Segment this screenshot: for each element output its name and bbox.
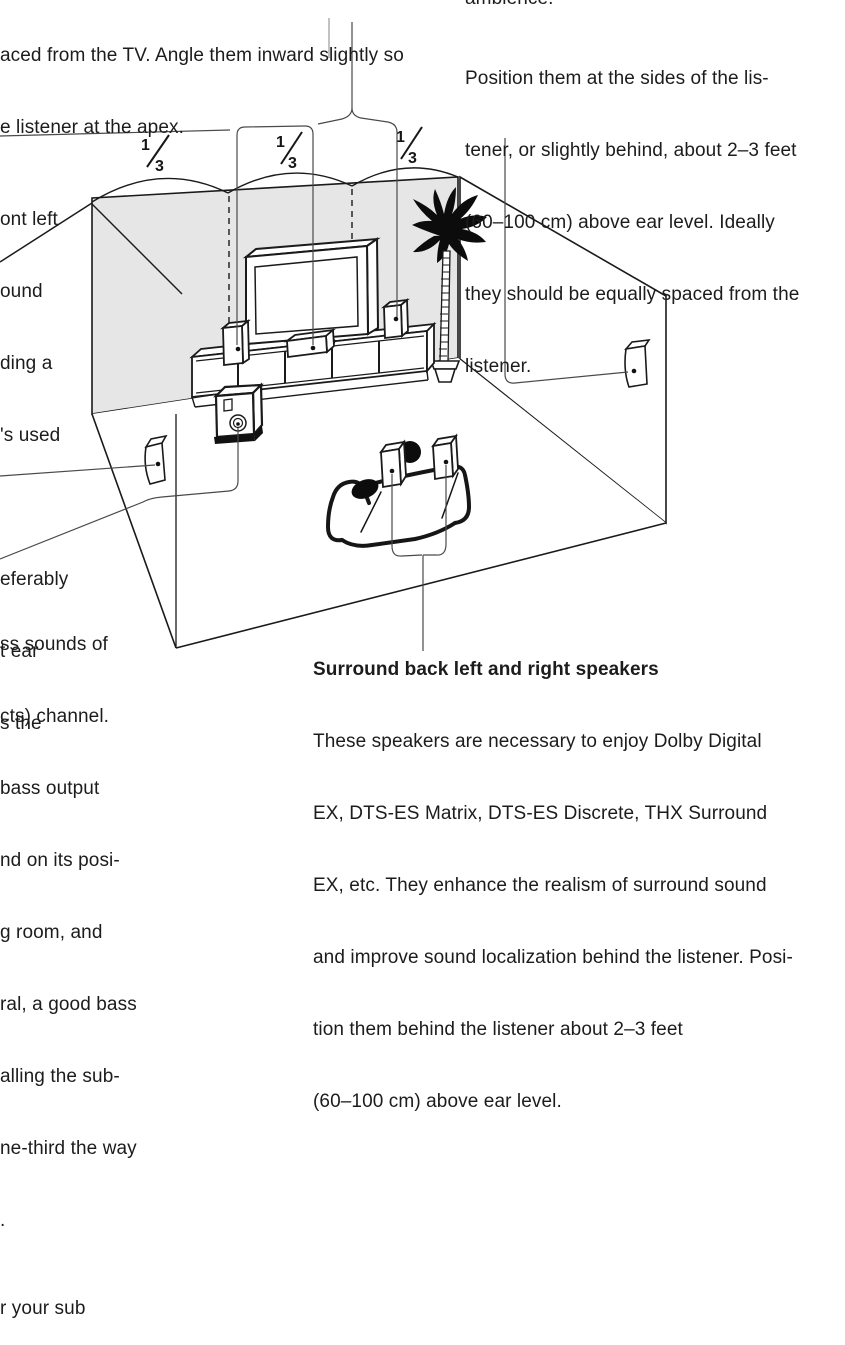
subwoofer-port [224, 399, 232, 411]
text-fragment: ound [0, 280, 68, 304]
text-fragment: ral, a good bass [0, 993, 137, 1017]
text-line: they should be equally spaced from the [465, 283, 799, 307]
text-fragment: alling the sub- [0, 1065, 137, 1089]
text-line: EX, DTS-ES Matrix, DTS-ES Discrete, THX … [313, 802, 793, 826]
text-fragment: ss sounds of [0, 633, 137, 657]
text-fragment: nd on its posi- [0, 849, 137, 873]
text-line: tion them behind the listener about 2–3 … [313, 1018, 793, 1042]
text-line: Position them at the sides of the lis- [465, 67, 799, 91]
text-fragment [0, 496, 68, 520]
text-fragment: ne-third the way [0, 1137, 137, 1161]
text-fragment: cts) channel. [0, 705, 137, 729]
text-line: These speakers are necessary to enjoy Do… [313, 730, 793, 754]
text-fragment: g room, and [0, 921, 137, 945]
text-line: tener, or slightly behind, about 2–3 fee… [465, 139, 799, 163]
subwoofer-clipped-paragraph: ss sounds of cts) channel. bass output n… [0, 585, 137, 1345]
fraction-den: 3 [408, 150, 417, 167]
text-line: aced from the TV. Angle them inward slig… [0, 44, 404, 68]
surround-speakers-paragraph: Position them at the sides of the lis- t… [465, 19, 799, 403]
surround-back-heading: Surround back left and right speakers [313, 658, 659, 682]
text-line: (60–100 cm) above ear level. [313, 1090, 793, 1114]
text-fragment: ont left [0, 208, 68, 232]
manual-page: { "top_left": { "lines": ["aced from the… [0, 0, 845, 835]
top-right-clipped-line: ambience. [465, 0, 554, 11]
text-fragment: r your sub [0, 1297, 137, 1321]
text-fragment: bass output [0, 777, 137, 801]
surround-back-left-speaker [381, 442, 406, 487]
cabinet-right-end [427, 324, 434, 371]
text-fragment: ding a [0, 352, 68, 376]
text-line: listener. [465, 355, 799, 379]
text-fragment: . [0, 1209, 137, 1233]
tv-screen [255, 257, 358, 334]
text-line: EX, etc. They enhance the realism of sur… [313, 874, 793, 898]
text-line: (60–100 cm) above ear level. Ideally [465, 211, 799, 235]
text-line: e listener at the apex. [0, 116, 404, 140]
text-fragment: 's used [0, 424, 68, 448]
text-line: and improve sound localization behind th… [313, 946, 793, 970]
top-left-paragraph: aced from the TV. Angle them inward slig… [0, 0, 404, 164]
surround-back-paragraph: These speakers are necessary to enjoy Do… [313, 682, 793, 1138]
front-left-speaker [223, 321, 249, 365]
